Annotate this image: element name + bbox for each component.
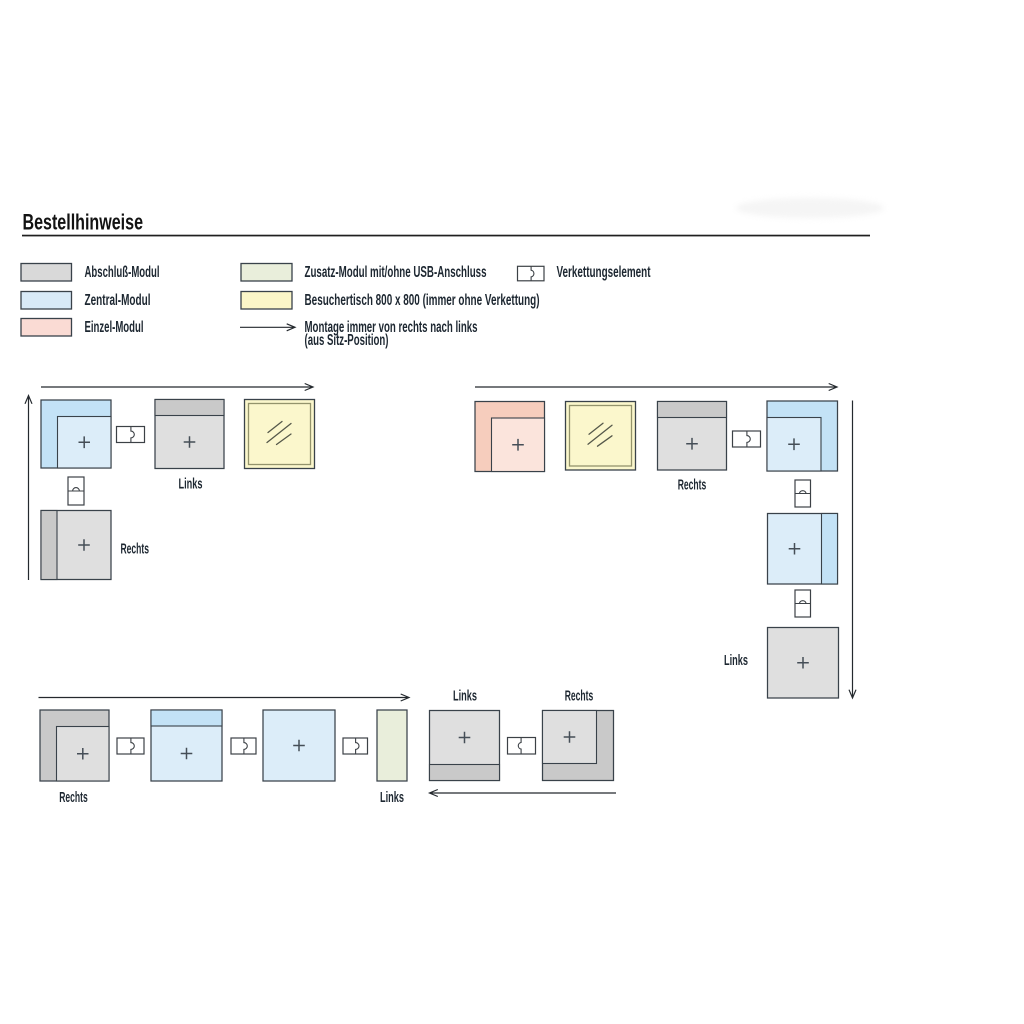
svg-text:Links: Links <box>179 477 203 493</box>
svg-text:Verkettungselement: Verkettungselement <box>557 264 651 281</box>
svg-text:Zentral-Modul: Zentral-Modul <box>85 292 151 309</box>
svg-text:Rechts: Rechts <box>678 478 707 494</box>
svg-text:(aus Sitz-Position): (aus Sitz-Position) <box>305 332 389 349</box>
svg-text:Zusatz-Modul mit/ohne USB-Ansc: Zusatz-Modul mit/ohne USB-Anschluss <box>305 264 487 281</box>
svg-text:Bestellhinweise: Bestellhinweise <box>23 210 144 235</box>
svg-text:Rechts: Rechts <box>565 689 594 705</box>
svg-text:Rechts: Rechts <box>121 542 150 558</box>
svg-text:Links: Links <box>724 653 748 669</box>
svg-text:Einzel-Modul: Einzel-Modul <box>85 319 144 336</box>
svg-text:Besuchertisch 800 x 800 (immer: Besuchertisch 800 x 800 (immer ohne Verk… <box>305 292 540 309</box>
svg-text:Rechts: Rechts <box>59 790 88 806</box>
svg-text:Links: Links <box>380 790 404 806</box>
svg-text:Abschluß-Modul: Abschluß-Modul <box>85 264 160 281</box>
svg-text:Links: Links <box>453 689 477 705</box>
